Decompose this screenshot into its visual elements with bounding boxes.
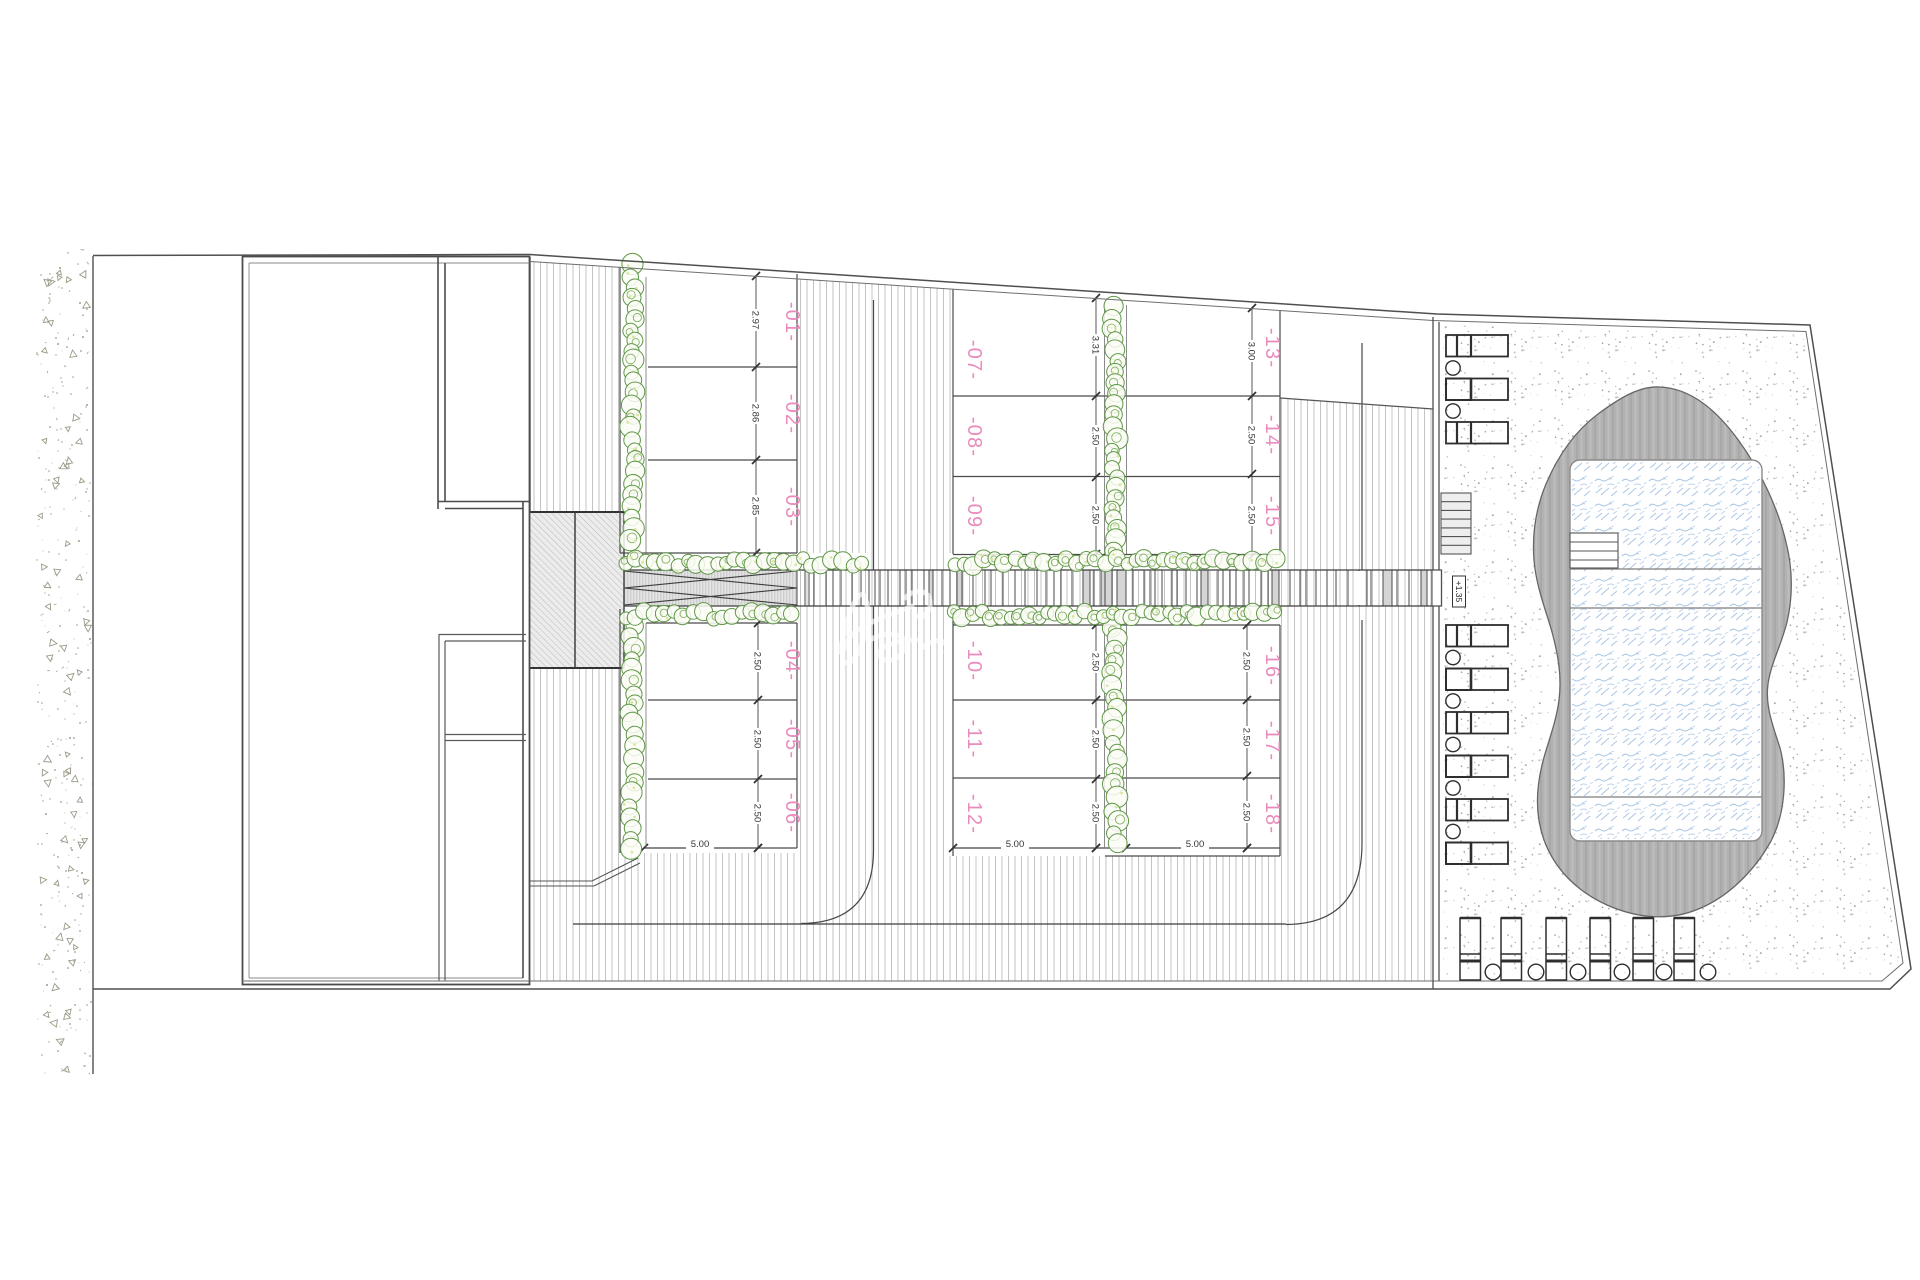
svg-text:-06-: -06- — [781, 793, 803, 833]
svg-text:5.00: 5.00 — [1186, 839, 1205, 850]
svg-text:-12-: -12- — [963, 794, 985, 834]
svg-text:2.50: 2.50 — [1090, 804, 1101, 823]
svg-text:-02-: -02- — [781, 394, 803, 434]
svg-text:2.50: 2.50 — [1241, 652, 1252, 671]
svg-text:-04-: -04- — [781, 641, 803, 681]
svg-text:-18-: -18- — [1261, 794, 1283, 834]
svg-text:-13-: -13- — [1261, 328, 1283, 368]
svg-text:-05-: -05- — [781, 719, 803, 759]
svg-text:-07-: -07- — [963, 340, 985, 380]
svg-text:2.50: 2.50 — [1090, 506, 1101, 525]
svg-text:-03-: -03- — [781, 487, 803, 527]
svg-text:-10-: -10- — [963, 641, 985, 681]
svg-text:-09-: -09- — [963, 496, 985, 536]
svg-text:-15-: -15- — [1261, 496, 1283, 536]
svg-text:-11-: -11- — [963, 720, 985, 759]
svg-text:2.50: 2.50 — [1246, 426, 1257, 445]
svg-text:2.50: 2.50 — [752, 804, 763, 823]
svg-text:2.50: 2.50 — [752, 652, 763, 671]
svg-text:2.50: 2.50 — [1246, 506, 1257, 525]
svg-text:2.50: 2.50 — [1090, 427, 1101, 446]
svg-text:2.50: 2.50 — [1241, 728, 1252, 747]
svg-text:-01-: -01- — [781, 302, 803, 342]
svg-text:2.86: 2.86 — [750, 404, 761, 423]
svg-text:2.50: 2.50 — [1090, 653, 1101, 672]
svg-text:5.00: 5.00 — [1006, 839, 1025, 850]
svg-text:-16-: -16- — [1261, 646, 1283, 686]
svg-text:-08-: -08- — [963, 417, 985, 457]
svg-text:2.97: 2.97 — [750, 311, 761, 330]
svg-text:-14-: -14- — [1261, 415, 1283, 455]
svg-text:2.85: 2.85 — [750, 497, 761, 516]
svg-text:2.50: 2.50 — [1241, 803, 1252, 822]
svg-text:-17-: -17- — [1261, 721, 1283, 761]
svg-text:3.31: 3.31 — [1090, 336, 1101, 355]
svg-text:5.00: 5.00 — [691, 839, 710, 850]
svg-text:2.50: 2.50 — [752, 730, 763, 749]
svg-text:2.50: 2.50 — [1090, 730, 1101, 749]
svg-text:3.00: 3.00 — [1246, 342, 1257, 361]
svg-text:+1.35: +1.35 — [1454, 581, 1464, 603]
